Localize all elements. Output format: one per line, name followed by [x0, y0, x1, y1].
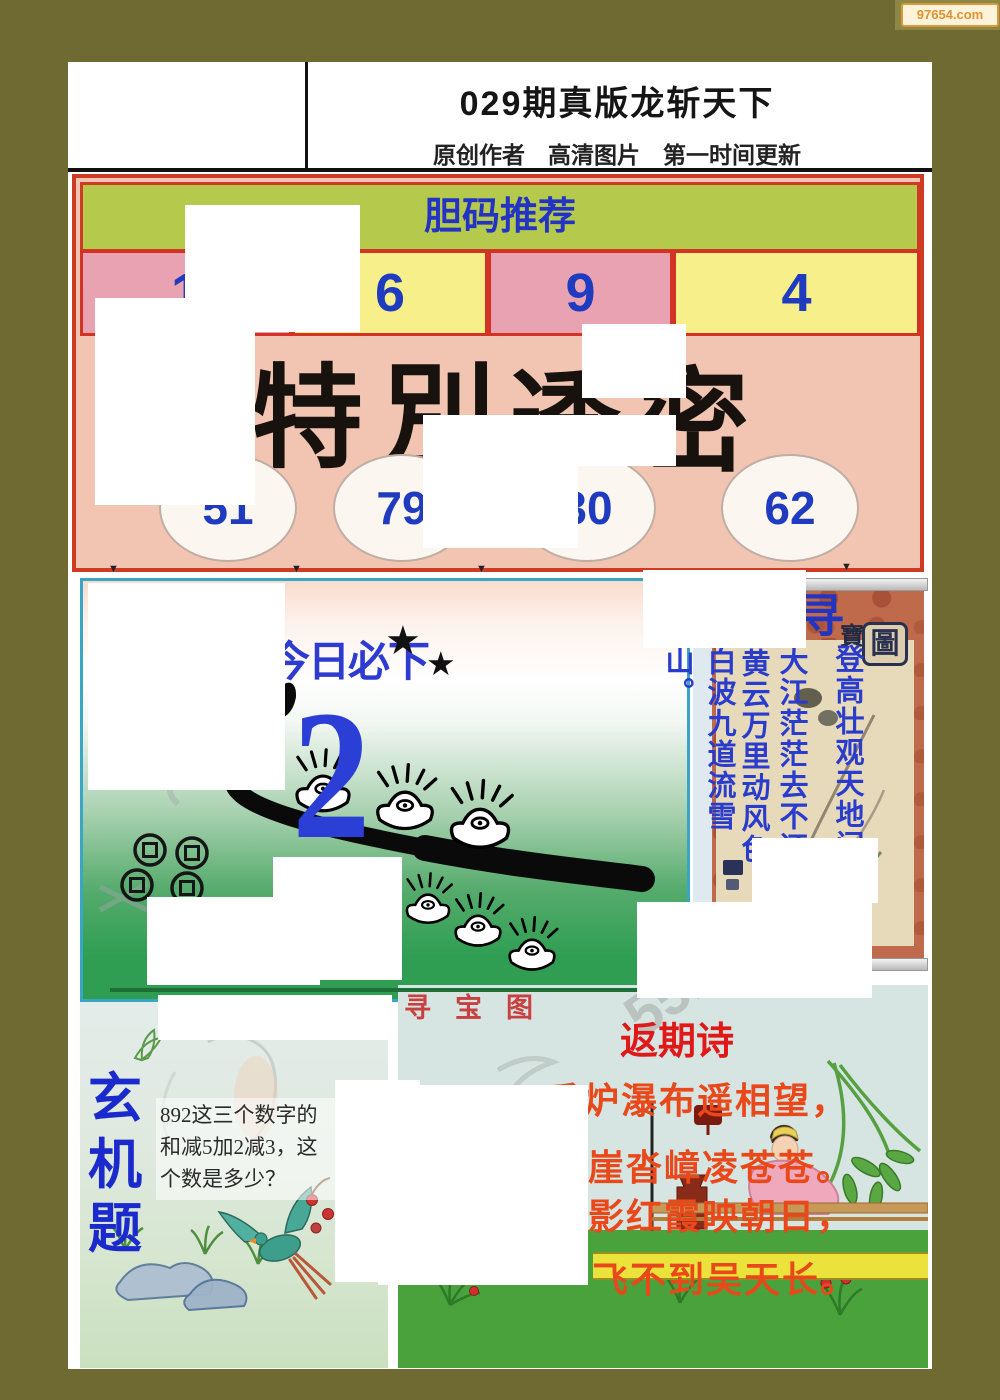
censor-box [95, 298, 255, 505]
censor-box [582, 324, 686, 398]
seal-mark [726, 879, 739, 890]
censor-box [158, 995, 392, 1040]
scroll-poem-col-4: 白波九道流雪山。 [704, 646, 740, 876]
censor-box [643, 570, 806, 648]
header-divider [305, 62, 308, 170]
censor-box [88, 583, 285, 790]
site-watermark: 97654.com [901, 3, 999, 27]
poem-line-1: 香炉瀑布遥相望， [545, 1072, 849, 1124]
question-line: 和减5加2减3，这 [160, 1131, 340, 1163]
poem-title: 返期诗 [620, 1010, 734, 1065]
question-line: 个数是多少？ [160, 1163, 340, 1195]
mystery-title-char-3: 题 [86, 1184, 144, 1263]
down-triangle-icon: ▼ [476, 563, 487, 575]
censor-box [378, 1085, 588, 1285]
daily-big-number: 2 [292, 676, 371, 876]
censor-box [637, 902, 872, 998]
scroll-title-char-3: 圖 [862, 622, 908, 666]
down-triangle-icon: ▼ [841, 561, 852, 573]
down-triangle-icon: ▼ [108, 563, 119, 575]
censor-box [147, 897, 320, 985]
treasure-map-label: 寻宝图 [404, 986, 557, 1025]
lottery-sheet: 97654.com 029期真版龙斩天下 原创作者 高清图片 第一时间更新 胆码… [0, 0, 1000, 1400]
mystery-question: 892这三个数字的 和减5加2减3，这 个数是多少？ [156, 1098, 344, 1200]
danma-cell-4: 4 [673, 250, 920, 336]
star-icon: ★ [426, 644, 456, 683]
poem-line-3: 影红霞映朝日， [588, 1188, 854, 1240]
down-triangle-icon: ▼ [291, 563, 302, 575]
poem-line-2: 崖沓嶂凌苍苍。 [588, 1139, 854, 1191]
seal-mark [723, 860, 743, 875]
censor-box [423, 460, 578, 548]
censor-box [423, 415, 676, 466]
question-line: 892这三个数字的 [160, 1099, 340, 1131]
page-title: 029期真版龙斩天下 [310, 76, 924, 125]
star-icon: ★ [385, 618, 421, 664]
poem-line-4: 飞不到吴天长。 [592, 1251, 858, 1303]
censor-box [752, 838, 878, 903]
page-subtitle: 原创作者 高清图片 第一时间更新 [310, 136, 924, 170]
special-ball-4: 62 [721, 454, 859, 562]
